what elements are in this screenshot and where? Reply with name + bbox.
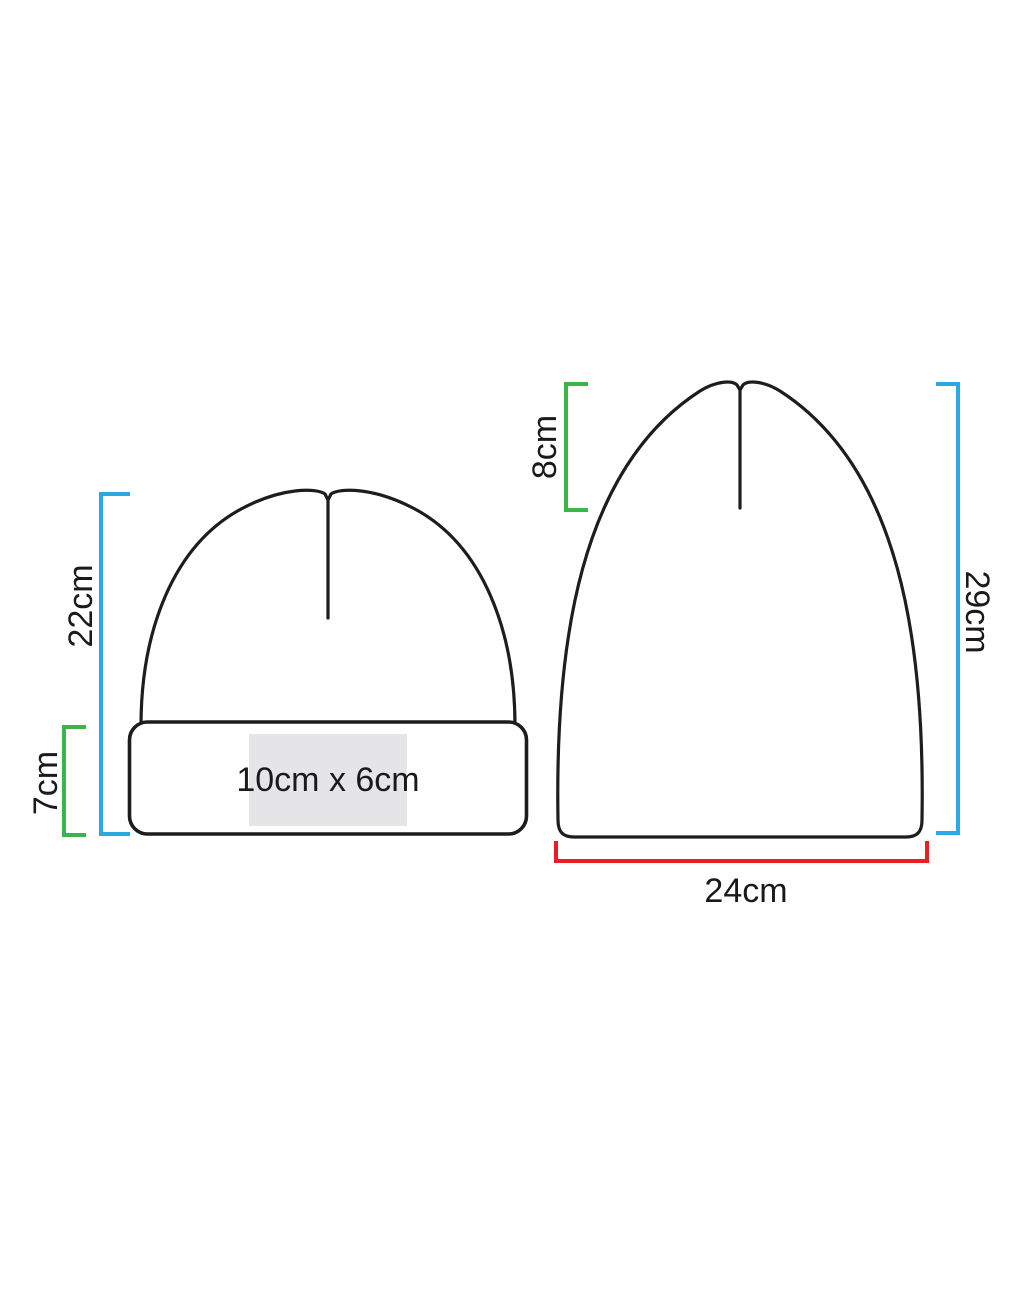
beanie-size-diagram-page: 10cm x 6cm 22cm 7cm 8cm 29cm 24cm: [0, 0, 1024, 1304]
width-label: 24cm: [704, 872, 787, 910]
print-area-label: 10cm x 6cm: [236, 761, 419, 799]
cuff-height-label: 7cm: [27, 751, 65, 815]
beanie-size-diagram: 10cm x 6cm 22cm 7cm 8cm 29cm 24cm: [0, 0, 1024, 1304]
fold-depth-label: 8cm: [526, 415, 564, 479]
folded-beanie: 10cm x 6cm 22cm 7cm: [27, 490, 527, 835]
fold-depth-bracket: [566, 384, 588, 510]
cuff-height-bracket: [64, 727, 86, 835]
unfolded-total-height-bracket: [936, 384, 958, 833]
width-bracket: [556, 841, 927, 861]
unfolded-beanie: 8cm 29cm 24cm: [526, 382, 996, 910]
unfolded-total-height-label: 29cm: [958, 570, 996, 653]
folded-total-height-label: 22cm: [62, 564, 100, 647]
folded-total-height-bracket: [101, 494, 130, 834]
